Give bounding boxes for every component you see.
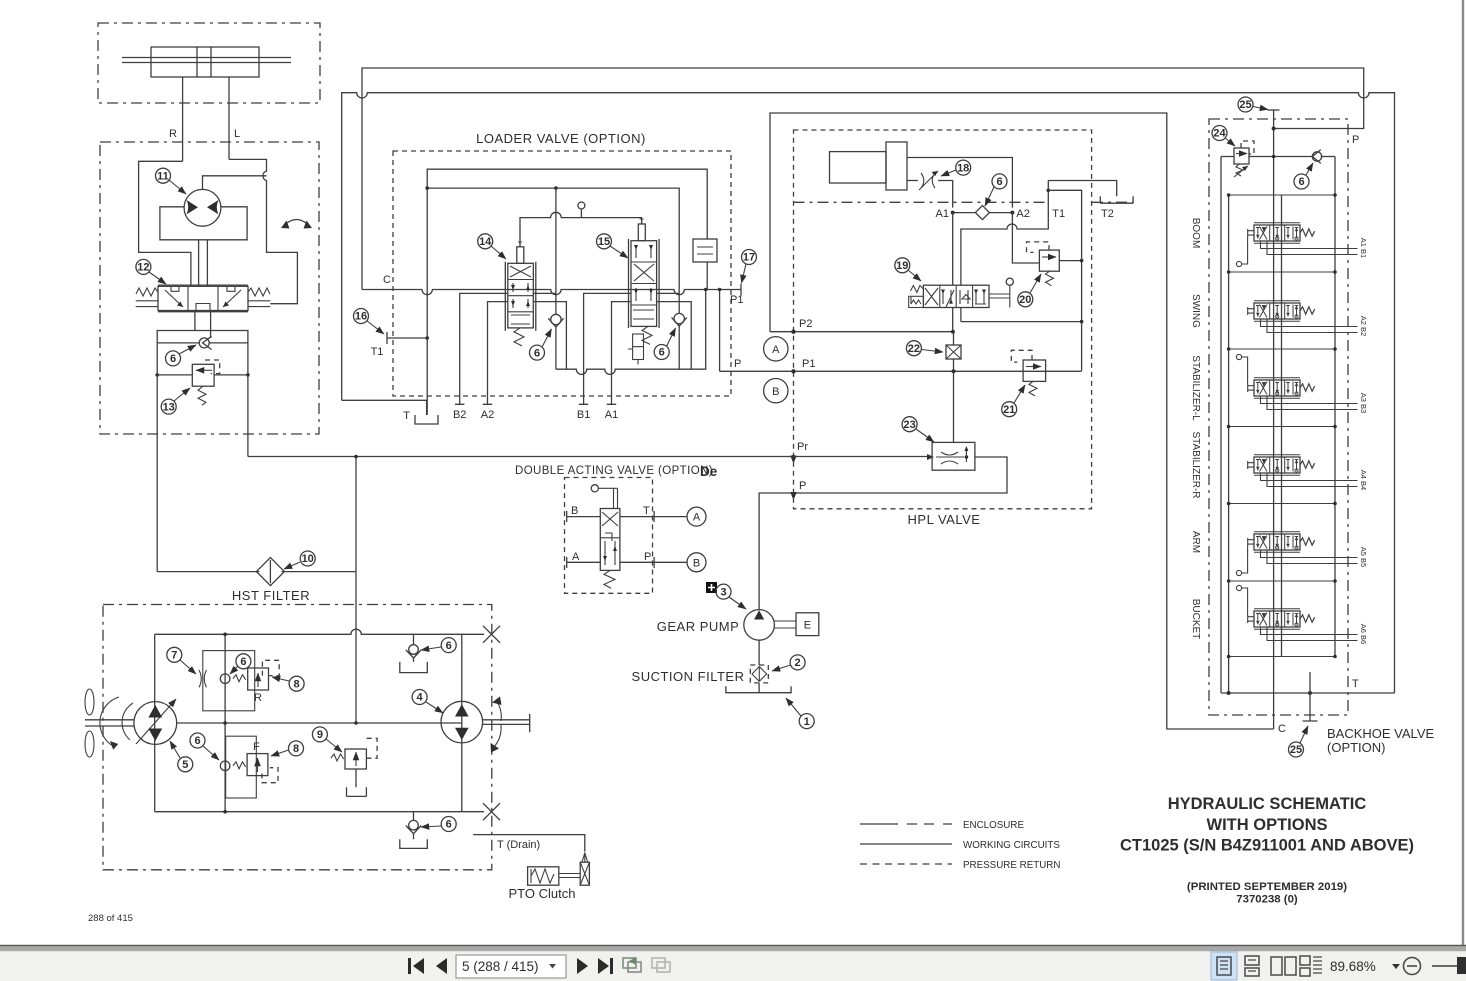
- svg-text:A2: A2: [481, 409, 494, 421]
- svg-text:6: 6: [659, 347, 665, 359]
- svg-text:P: P: [799, 480, 806, 492]
- svg-text:8: 8: [294, 678, 300, 690]
- svg-text:A: A: [693, 512, 701, 524]
- svg-text:B: B: [772, 386, 779, 398]
- svg-text:13: 13: [163, 401, 175, 413]
- svg-text:GEAR PUMP: GEAR PUMP: [657, 619, 740, 634]
- svg-text:De: De: [700, 464, 718, 479]
- svg-text:HYDRAULIC SCHEMATIC: HYDRAULIC SCHEMATIC: [1168, 795, 1367, 813]
- svg-text:3: 3: [720, 586, 726, 598]
- svg-text:6: 6: [240, 656, 246, 668]
- svg-text:BACKHOE VALVE: BACKHOE VALVE: [1327, 726, 1434, 741]
- svg-text:STABILIZER-L: STABILIZER-L: [1190, 355, 1201, 421]
- svg-text:B2: B2: [453, 409, 466, 421]
- svg-text:P1: P1: [730, 294, 743, 306]
- svg-text:A1: A1: [936, 208, 949, 220]
- svg-text:23: 23: [903, 419, 915, 431]
- svg-text:T: T: [1352, 678, 1359, 690]
- svg-text:8: 8: [293, 743, 299, 755]
- svg-text:25: 25: [1290, 744, 1302, 756]
- svg-text:R: R: [254, 692, 262, 704]
- svg-text:6: 6: [534, 347, 540, 359]
- svg-text:T2: T2: [1101, 208, 1114, 220]
- svg-text:A4 B4: A4 B4: [1359, 470, 1368, 490]
- svg-text:P1: P1: [802, 358, 815, 370]
- svg-text:288 of 415: 288 of 415: [88, 913, 133, 924]
- svg-text:A5 B5: A5 B5: [1359, 547, 1368, 567]
- svg-text:9: 9: [317, 729, 323, 741]
- svg-text:18: 18: [957, 162, 969, 174]
- svg-text:89.68%: 89.68%: [1330, 959, 1376, 974]
- svg-text:B: B: [571, 505, 578, 517]
- svg-text:11: 11: [157, 170, 169, 182]
- svg-text:T: T: [403, 410, 410, 422]
- svg-text:Pr: Pr: [797, 441, 808, 453]
- svg-text:T (Drain): T (Drain): [497, 839, 540, 851]
- svg-text:T1: T1: [1052, 208, 1065, 220]
- svg-text:7370238 (0): 7370238 (0): [1236, 894, 1298, 906]
- svg-text:16: 16: [355, 311, 367, 323]
- svg-text:SUCTION FILTER: SUCTION FILTER: [632, 669, 745, 684]
- svg-text:C: C: [383, 274, 391, 286]
- svg-text:P: P: [644, 551, 651, 563]
- svg-text:R: R: [169, 128, 177, 140]
- svg-text:WITH OPTIONS: WITH OPTIONS: [1207, 816, 1328, 834]
- svg-text:B1: B1: [577, 409, 590, 421]
- svg-text:15: 15: [598, 236, 610, 248]
- svg-text:P2: P2: [799, 318, 812, 330]
- svg-text:4: 4: [417, 692, 424, 704]
- svg-text:PTO Clutch: PTO Clutch: [509, 886, 576, 901]
- svg-text:A: A: [772, 344, 780, 356]
- svg-text:DOUBLE ACTING VALVE (OPTION): DOUBLE ACTING VALVE (OPTION): [515, 465, 713, 477]
- svg-text:PRESSURE RETURN: PRESSURE RETURN: [963, 860, 1060, 871]
- svg-text:LOADER VALVE (OPTION): LOADER VALVE (OPTION): [476, 131, 646, 146]
- svg-text:6: 6: [170, 353, 176, 365]
- svg-text:B: B: [693, 557, 700, 569]
- svg-text:A2: A2: [1016, 208, 1029, 220]
- svg-text:HST FILTER: HST FILTER: [232, 588, 310, 603]
- svg-text:6: 6: [446, 640, 452, 652]
- svg-text:STABILIZER-R: STABILIZER-R: [1190, 431, 1201, 498]
- svg-text:5 (288 / 415): 5 (288 / 415): [462, 959, 539, 974]
- svg-text:(OPTION): (OPTION): [1327, 740, 1386, 755]
- svg-text:24: 24: [1213, 128, 1226, 140]
- svg-text:A1 B1: A1 B1: [1359, 238, 1368, 258]
- svg-text:6: 6: [194, 735, 200, 747]
- svg-text:A: A: [572, 551, 580, 563]
- svg-text:T1: T1: [371, 346, 384, 358]
- svg-text:P: P: [1352, 134, 1359, 146]
- svg-text:SWING: SWING: [1190, 294, 1201, 328]
- svg-text:6: 6: [446, 819, 452, 831]
- svg-text:CT1025 (S/N B4Z911001 AND ABOV: CT1025 (S/N B4Z911001 AND ABOVE): [1120, 837, 1414, 855]
- svg-text:10: 10: [302, 553, 314, 565]
- svg-text:25: 25: [1239, 99, 1251, 111]
- svg-text:12: 12: [137, 262, 149, 274]
- svg-text:T: T: [643, 505, 650, 517]
- svg-text:6: 6: [1298, 176, 1304, 188]
- svg-text:F: F: [253, 741, 260, 753]
- svg-text:ARM: ARM: [1190, 531, 1201, 553]
- svg-text:A6 B6: A6 B6: [1359, 624, 1368, 644]
- svg-text:2: 2: [795, 657, 801, 669]
- svg-text:WORKING CIRCUITS: WORKING CIRCUITS: [963, 840, 1060, 851]
- svg-text:19: 19: [896, 260, 908, 272]
- svg-text:L: L: [234, 128, 240, 140]
- svg-text:7: 7: [171, 650, 177, 662]
- svg-text:5: 5: [182, 759, 188, 771]
- svg-text:C: C: [1278, 723, 1286, 735]
- svg-text:A3 B3: A3 B3: [1359, 393, 1368, 413]
- svg-text:HPL VALVE: HPL VALVE: [908, 512, 981, 527]
- svg-text:17: 17: [743, 252, 755, 264]
- svg-text:P: P: [734, 358, 741, 370]
- svg-text:21: 21: [1003, 404, 1015, 416]
- svg-text:A1: A1: [605, 409, 618, 421]
- svg-text:BOOM: BOOM: [1190, 218, 1201, 249]
- svg-text:A2 B2: A2 B2: [1359, 316, 1368, 336]
- svg-text:E: E: [804, 619, 811, 631]
- svg-text:14: 14: [479, 236, 492, 248]
- svg-text:22: 22: [908, 343, 920, 355]
- svg-text:20: 20: [1019, 294, 1031, 306]
- svg-text:ENCLOSURE: ENCLOSURE: [963, 820, 1024, 831]
- svg-text:(PRINTED SEPTEMBER 2019): (PRINTED SEPTEMBER 2019): [1187, 881, 1347, 893]
- svg-text:6: 6: [996, 176, 1002, 188]
- svg-text:1: 1: [804, 716, 810, 728]
- svg-text:BUCKET: BUCKET: [1190, 599, 1201, 640]
